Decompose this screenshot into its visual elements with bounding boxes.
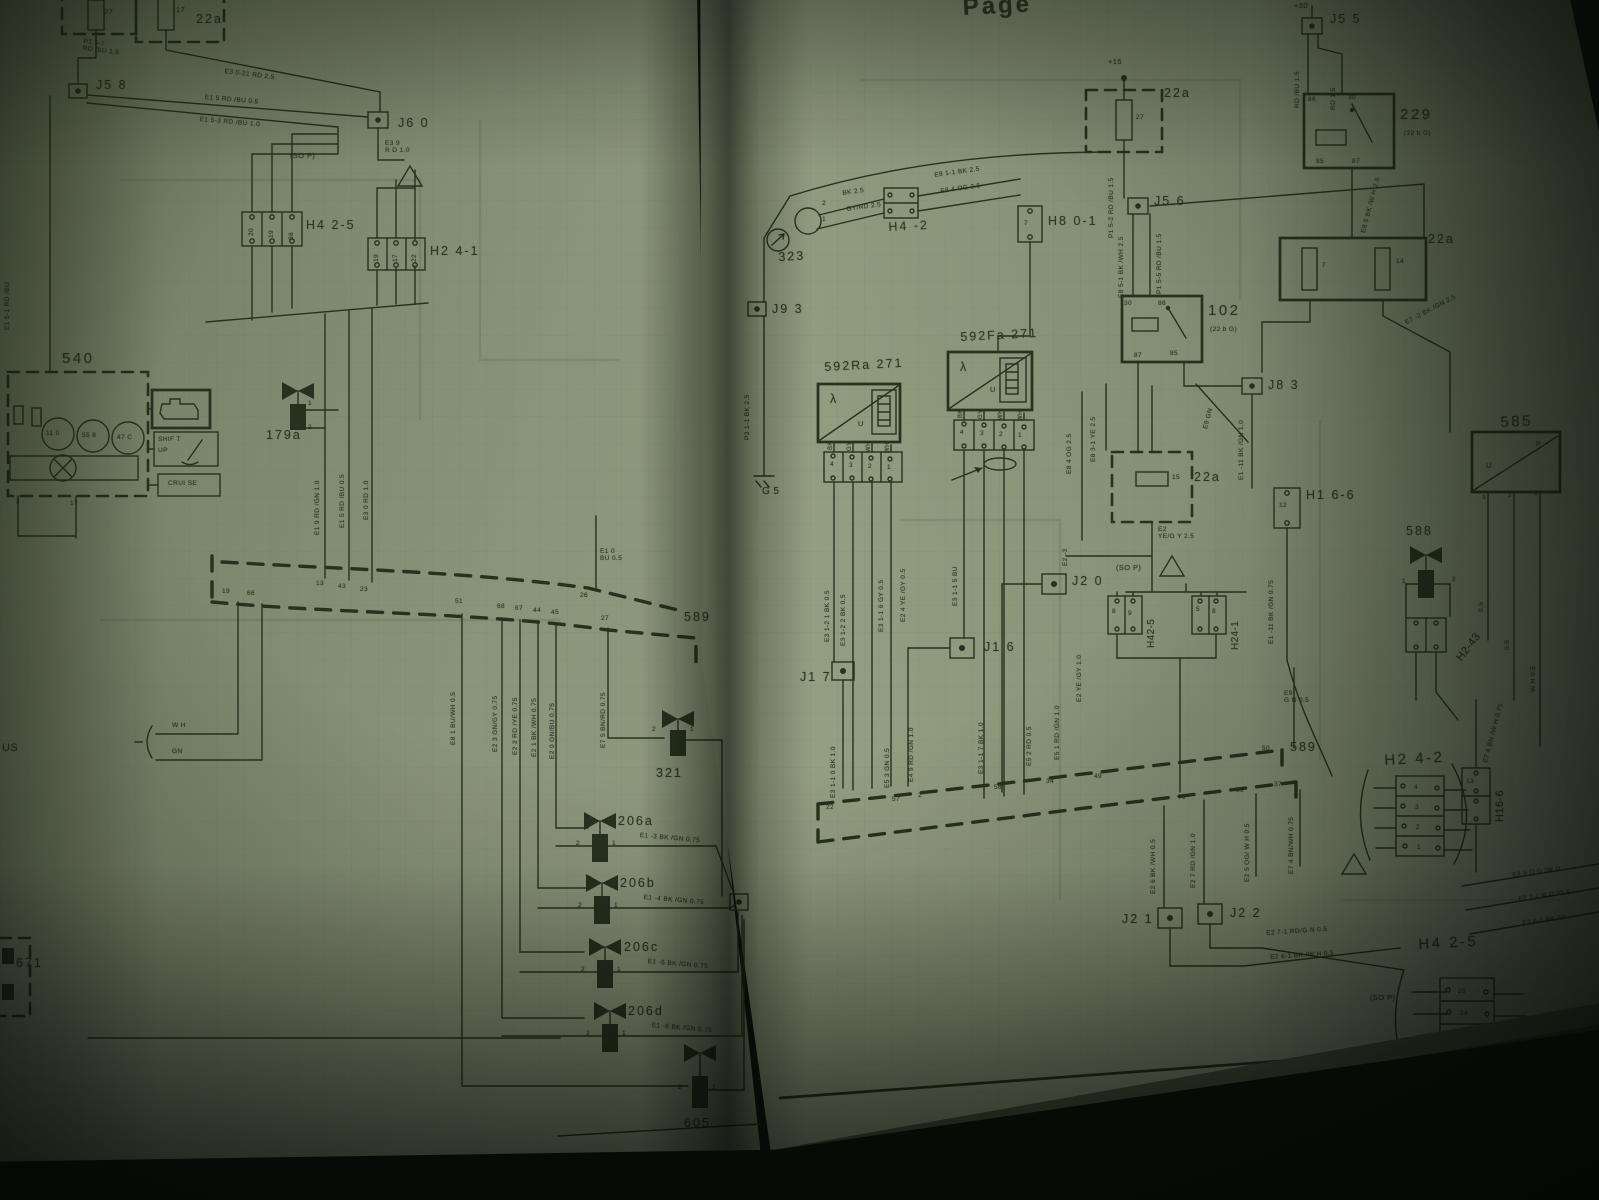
pin-number: 87 [1352, 158, 1360, 165]
wire-label: 0.5 [1504, 640, 1511, 650]
pin-number: 30 [1348, 94, 1356, 101]
wire-label: E1 5 RD /BU 0.5 [339, 474, 346, 528]
wire-label: E2 YE /GY 1.0 [1076, 655, 1083, 702]
wire-label: E2 2 RD /YE 0.75 [512, 697, 519, 755]
relay-229: 229 [1400, 106, 1433, 123]
connector-h166: H1 6-6 [1306, 488, 1356, 502]
sensor-592ra: 592Ra 271 [824, 356, 904, 374]
wire-color: WH [998, 409, 1005, 420]
pin-number: 1 [822, 216, 826, 223]
wire-label: E8 1-1 BK 2.5 [934, 166, 980, 180]
gauge-value: 47 C [117, 434, 132, 441]
wire-label: P1 5-2 RD /BU 1.5 [1108, 177, 1115, 238]
pin-number: 13 [316, 580, 324, 587]
relay-102-sub: (22 b G) [1210, 326, 1237, 333]
relay-102: 102 [1208, 302, 1241, 319]
pin-number: 50 [1262, 745, 1270, 752]
pin-number: 9 [1128, 610, 1132, 617]
pin-number: 2 [822, 200, 826, 207]
connector-j83: J8 3 [1268, 378, 1300, 392]
pin-number: 1 [622, 1030, 626, 1037]
pin-number: 2 [576, 840, 580, 847]
wire-label: E3 1-1 6 GY 0.5 [878, 580, 885, 633]
wire-label: E5 1 RD /GN 1.0 [1054, 705, 1061, 760]
wire-label: E8 4 OG 2.5 [940, 182, 981, 195]
connector-j22: J2 2 [1230, 906, 1262, 920]
pin-number: 17 [392, 254, 399, 262]
wire-label: E2 4 YE /GY 0.5 [900, 569, 907, 622]
wire-label: E3 1-1 5 BU [952, 566, 959, 606]
wire-color: WH [885, 442, 892, 453]
wire-label: E3 1-2 1 BK 0.5 [824, 590, 831, 642]
pin-number: 34 [1046, 778, 1054, 785]
connector-h241: H2 4-1 [430, 244, 480, 258]
fuse-value: 27 [1136, 114, 1144, 121]
terminal-plus15: +15 [1108, 58, 1122, 67]
connector-j21: J2 1 [1122, 912, 1154, 926]
fusebox-label: 22a [1164, 86, 1191, 100]
connector-j55: J5 5 [1330, 12, 1362, 26]
connector-h243: H2-43 [1454, 631, 1484, 664]
harness-589: 589 [1290, 740, 1317, 754]
lambda-symbol: λ [830, 392, 838, 406]
pin-number: 7 [1024, 220, 1028, 227]
wire-label: W H 0.5 [1530, 666, 1537, 692]
fusebox-label: 22a [1428, 232, 1455, 246]
pin-number: 26 [1458, 988, 1466, 995]
note-sop: (SO P) [1370, 994, 1395, 1003]
wire-label: E8 3-1 YE 2.5 [1090, 416, 1097, 462]
wire-label: E2 6 BK /WH 0.5 [1150, 839, 1157, 894]
wire-color: BK [958, 409, 965, 418]
wire-color: GY [847, 442, 854, 451]
gauge-value: 55 8 [82, 432, 96, 439]
connector-h24-1: H24-1 [1230, 621, 1242, 650]
pin-number: 4 [1414, 784, 1418, 791]
wire-label: E7 4 BN/WH 0.75 [1288, 817, 1295, 874]
wire-label: E5 2 RD 0.5 [1026, 726, 1033, 766]
wire-label: E2 5 OG/ W H 0.5 [1244, 823, 1251, 882]
pin-number: 85 [1170, 350, 1178, 357]
wire-color: GY [978, 410, 985, 419]
book-spine-shadow [640, 0, 810, 1200]
wire-color: WH [1018, 410, 1025, 421]
pin-number: 87 [1134, 352, 1142, 359]
page-header: Page [962, 0, 1033, 22]
wire-label: E3 0-21 RD 2.5 [224, 68, 275, 82]
pin-number: 2 [1416, 824, 1420, 831]
wire-label: E8 5 BK /W H 2.5 [1360, 177, 1382, 234]
pin-number: 2 [308, 424, 312, 431]
component-585: 585 [1500, 412, 1533, 431]
pin-number: 1 [308, 400, 312, 407]
pin-number: 4 [830, 461, 834, 468]
pin-number: 2 [581, 966, 585, 973]
sensor-592fa: 592Fa 271 [960, 326, 1038, 344]
connector-j58: J5 8 [96, 78, 128, 92]
pin-number: 19 [268, 230, 275, 238]
wire-label: E9 GN [1202, 407, 1215, 430]
wire-label: E1 5 RD /BU 0.5 [204, 94, 259, 106]
component-540: 540 [62, 350, 95, 367]
pin-number: 1 [1417, 844, 1421, 851]
pin-number: 8 [1212, 608, 1216, 615]
wire-label: E3 1-2 2 BK 0.5 [840, 594, 847, 646]
wire-label: 0.5 [1478, 602, 1485, 612]
relay-229-sub: (22 b G) [1404, 130, 1431, 137]
pin-number: 22 [411, 254, 418, 262]
wire-label: E8 4 OG 2.5 [1066, 433, 1073, 474]
wire-label: E2 5 O G /W H [1512, 865, 1561, 879]
pin-number: 86 [1158, 300, 1166, 307]
pin-number: 2 [1452, 576, 1456, 583]
wire-label: E8 1 BU/WH 0.5 [450, 692, 457, 745]
pin-number: 37 [1274, 781, 1282, 788]
connector-j20: J2 0 [1072, 574, 1104, 588]
wire-label: P1 5-5 RD /BU 1.5 [1156, 233, 1163, 294]
wire-label: E3 9 R D 1.0 [385, 140, 410, 155]
pin-number: 36 [288, 232, 295, 240]
wire-color: BK [828, 441, 835, 450]
note-sop: (SO P) [1116, 564, 1141, 573]
pin-number: 2 [16, 498, 20, 505]
wire-label: E2 0 GN/BU 0.75 [549, 703, 556, 759]
pin-number: 51 [455, 598, 463, 605]
pin-number: 3 [849, 462, 853, 469]
pin-number: 86 [1308, 96, 1316, 103]
pin-number: 30 [1124, 300, 1132, 307]
wire-label: E2 6-1 BK /W H 0.5 [1270, 950, 1334, 962]
connector-j16: J1 6 [984, 640, 1016, 654]
book-photo: 27 17 22a P1 5-7 RD /BU 1.5 E3 0-21 RD 2… [0, 0, 1599, 1200]
pin-number: 1 [1534, 490, 1538, 497]
pin-number: 23 [360, 586, 368, 593]
connector-h166b: H16-6 [1494, 790, 1507, 822]
fuse-value: 14 [1396, 258, 1404, 265]
connector-h42-5: H42-5 [1146, 619, 1158, 648]
pin-number: 68 [497, 603, 505, 610]
fuse-value: 27 [104, 8, 113, 17]
pin-number: 22 [826, 804, 834, 811]
component-588: 588 [1406, 524, 1433, 538]
wire-label: E4 9 RD /GN 1.0 [908, 727, 915, 782]
pin-number: 27 [601, 615, 609, 622]
wire-label: E2 3 GN/GY 0.75 [492, 696, 499, 752]
pin-number: 1 [612, 840, 616, 847]
pin-number: 44 [533, 607, 541, 614]
fuse-value: 17 [176, 6, 185, 15]
shift-up-label2: UP [158, 447, 168, 454]
pin-number: 1 [887, 464, 891, 471]
wire-label: E9 G N 0.5 [1284, 690, 1309, 705]
pin-number: 49 [1094, 773, 1102, 780]
pin-number: 5 [1196, 606, 1200, 613]
wire-label: E2 1 BK /WH 0.75 [531, 698, 538, 757]
fusebox-label: 22a [1194, 470, 1221, 484]
note-sop: (SO P) [290, 152, 315, 161]
fuse-value: 7 [1322, 262, 1326, 269]
pin-number: 26 [580, 592, 588, 599]
pin-number: 58 [994, 784, 1002, 791]
pin-number: 45 [551, 609, 559, 616]
wire-label: E7 -2 BK /GN 2.5 [1404, 293, 1458, 326]
connector-h801: H8 0-1 [1048, 214, 1098, 228]
pin-number: 1 [617, 966, 621, 973]
pin-number: 24 [1460, 1010, 1468, 1017]
u-symbol: U [1486, 462, 1492, 471]
shift-up-label: SHIF T [158, 436, 181, 443]
wire-label: E2 7-1 RD/G N 0.5 [1266, 926, 1328, 938]
wire-label: GY/RD 2.5 [846, 201, 882, 213]
connector-j60: J6 0 [398, 116, 430, 130]
wire-label: BK 2.5 [842, 187, 865, 197]
pin-number: 57 [892, 796, 900, 803]
wire-label: E1 9 RD /GN 1.0 [314, 480, 321, 535]
u-symbol: U [990, 386, 996, 395]
wire-color: WH [866, 441, 873, 452]
pin-number: 19 [222, 588, 230, 595]
pin-number: 2 [1508, 492, 1512, 499]
cruise-label: CRUI SE [168, 480, 197, 487]
wire-label: RD /BU 1.5 [1294, 71, 1301, 108]
pin-number: 67 [515, 605, 523, 612]
pin-number: 59 [1236, 787, 1244, 794]
pin-number: 2 [868, 463, 872, 470]
connector-h425-bottom: H4 2-5 [1418, 933, 1479, 953]
wire-label: E3 1-1 7 BK 1.0 [978, 722, 985, 774]
pin-number: 3 [1482, 494, 1486, 501]
u-symbol: U [858, 420, 864, 429]
pin-number: 13 [1466, 778, 1474, 785]
pin-number: 66 [247, 590, 255, 597]
pin-number: 17 [70, 500, 78, 507]
wire-label: E2 -3 [1062, 548, 1069, 566]
connector-h425: H4 2-5 [306, 218, 356, 232]
connector-h4-2: H4 -2 [888, 218, 929, 234]
pin-number: 1 [1018, 432, 1022, 439]
bus-wh: W H [172, 722, 186, 729]
wire-label: E1 5-1 RD /BU [4, 282, 11, 330]
wire-label: E2 7-1 R D /G 1 [1518, 889, 1571, 904]
component-671: 671 [16, 956, 43, 970]
pin-number: 20 [248, 228, 255, 236]
pin-number: 2 [578, 902, 582, 909]
pin-number: 2 [999, 431, 1003, 438]
pin-number: 2 [586, 1030, 590, 1037]
wire-label: E7 5 BN/RD 0.75 [600, 692, 607, 748]
wire-label: RD 1.5 [1330, 87, 1337, 110]
gauge-value: 11 0 [46, 430, 60, 437]
bus-gn: GN [172, 748, 183, 755]
wire-label: E1 0 BU 0.5 [600, 548, 622, 563]
terminal-plus30: +30 [1294, 2, 1308, 11]
wire-label: E1 5-3 RD /BU 1.0 [199, 116, 260, 129]
pin-number: 1 [1402, 578, 1406, 585]
pin-number: 3 [1415, 804, 1419, 811]
wire-label: E1 -11 BK /GN 0.75 [1268, 580, 1275, 644]
pin-number: 70 [1178, 794, 1186, 801]
pin-number: 19 [373, 254, 380, 262]
pin-number: 12 [1279, 502, 1287, 509]
wire-label: E3 1-1 0 BK 1.0 [830, 746, 837, 798]
wire-label: E2 YE/G Y 2.5 [1158, 526, 1194, 541]
wire-label: P1 5-7 RD /BU 1.5 [82, 38, 120, 57]
lambda-symbol: λ [960, 360, 968, 374]
pin-number: 1 [614, 902, 618, 909]
pin-number: 8 [1112, 608, 1116, 615]
pin-number: 85 [1316, 158, 1324, 165]
wire-label: E2 6-1 BK /W [1522, 914, 1567, 928]
pin-number: 43 [338, 583, 346, 590]
wire-label: E8 5-1 BK /WH 2.5 [1118, 236, 1125, 298]
pin-number: 2 [918, 792, 922, 799]
fusebox-label: 22a [196, 12, 223, 26]
pin-number: 4 [960, 429, 964, 436]
connector-h242: H2 4-2 [1384, 749, 1445, 769]
pin-number: 3 [980, 430, 984, 437]
bus-name-partial: US [2, 742, 18, 755]
wire-label: E1 -11 BK /GN 1.0 [1238, 420, 1245, 480]
wire-label: E7 4 BN /W H 0.75 [1482, 702, 1505, 764]
fuse-value: 15 [1172, 474, 1180, 481]
p-symbol: P [1536, 440, 1541, 449]
component-179a: 179a [266, 428, 302, 442]
connector-j56: J5 6 [1154, 194, 1186, 208]
wire-label: E5 3 GN 0.5 [884, 748, 891, 788]
wire-label: E3 0 RD 1.0 [363, 480, 370, 520]
wire-label: E2 7 RD /GN 1.0 [1190, 833, 1197, 888]
